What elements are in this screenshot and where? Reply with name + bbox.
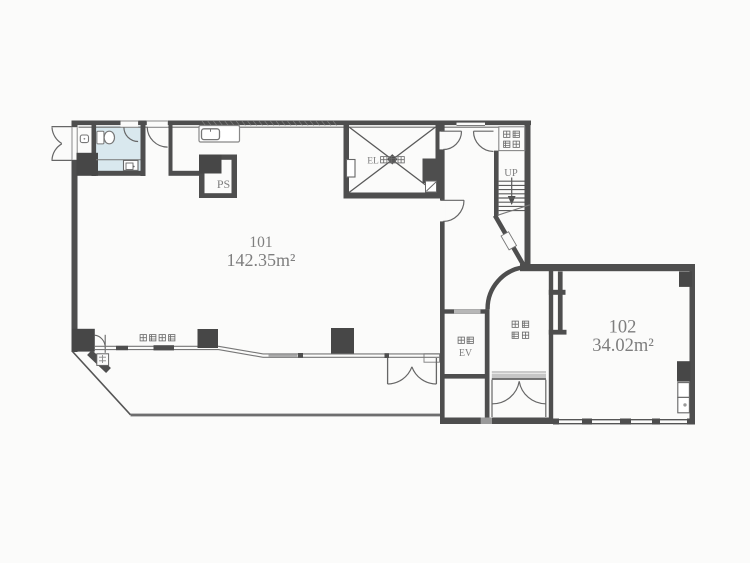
svg-text:142.35m²: 142.35m² [227,250,296,270]
svg-text:EV: EV [459,348,473,359]
svg-text:101: 101 [249,234,272,251]
svg-text:UP: UP [504,168,518,179]
svg-text:PS: PS [217,177,230,191]
svg-text:102: 102 [609,318,637,338]
svg-text:34.02m²: 34.02m² [592,336,654,356]
svg-text:EL: EL [367,157,379,167]
